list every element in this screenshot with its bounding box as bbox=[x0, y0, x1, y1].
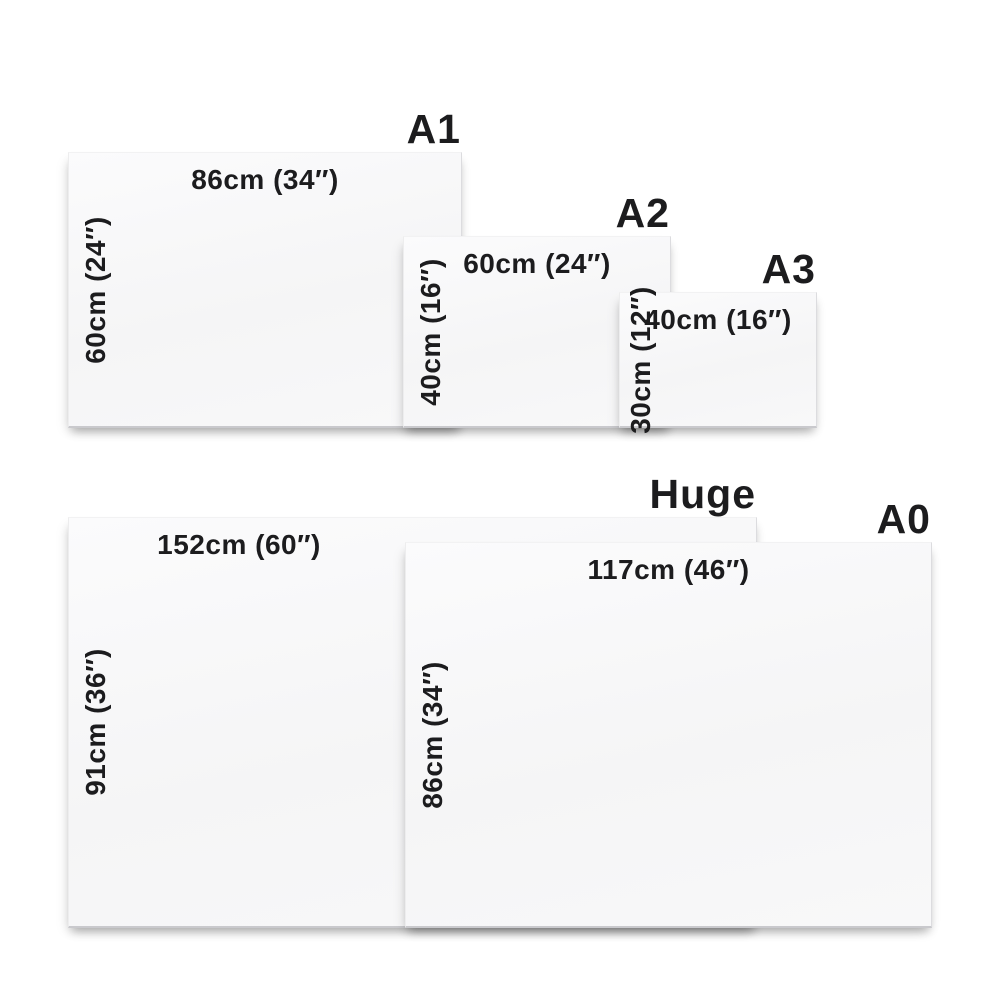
size-panel-a3: A3 40cm (16″) 30cm (12″) bbox=[619, 292, 817, 428]
size-title-a3: A3 bbox=[762, 249, 816, 290]
size-title-a0: A0 bbox=[877, 499, 931, 540]
size-title-a2: A2 bbox=[616, 193, 670, 234]
height-label-a3: 30cm (12″) bbox=[627, 286, 655, 434]
size-title-huge: Huge bbox=[650, 474, 757, 515]
size-comparison-diagram: A1 86cm (34″) 60cm (24″) A2 60cm (24″) 4… bbox=[0, 0, 1000, 1000]
height-label-a0: 86cm (34″) bbox=[419, 661, 447, 809]
height-label-a1: 60cm (24″) bbox=[82, 216, 110, 364]
height-label-huge: 91cm (36″) bbox=[82, 648, 110, 796]
width-label-huge: 152cm (60″) bbox=[69, 529, 409, 561]
width-label-a0: 117cm (46″) bbox=[406, 554, 931, 586]
height-label-a2: 40cm (16″) bbox=[417, 258, 445, 406]
width-label-a1: 86cm (34″) bbox=[69, 164, 461, 196]
size-panel-a0: A0 117cm (46″) 86cm (34″) bbox=[405, 542, 932, 928]
size-title-a1: A1 bbox=[407, 109, 461, 150]
